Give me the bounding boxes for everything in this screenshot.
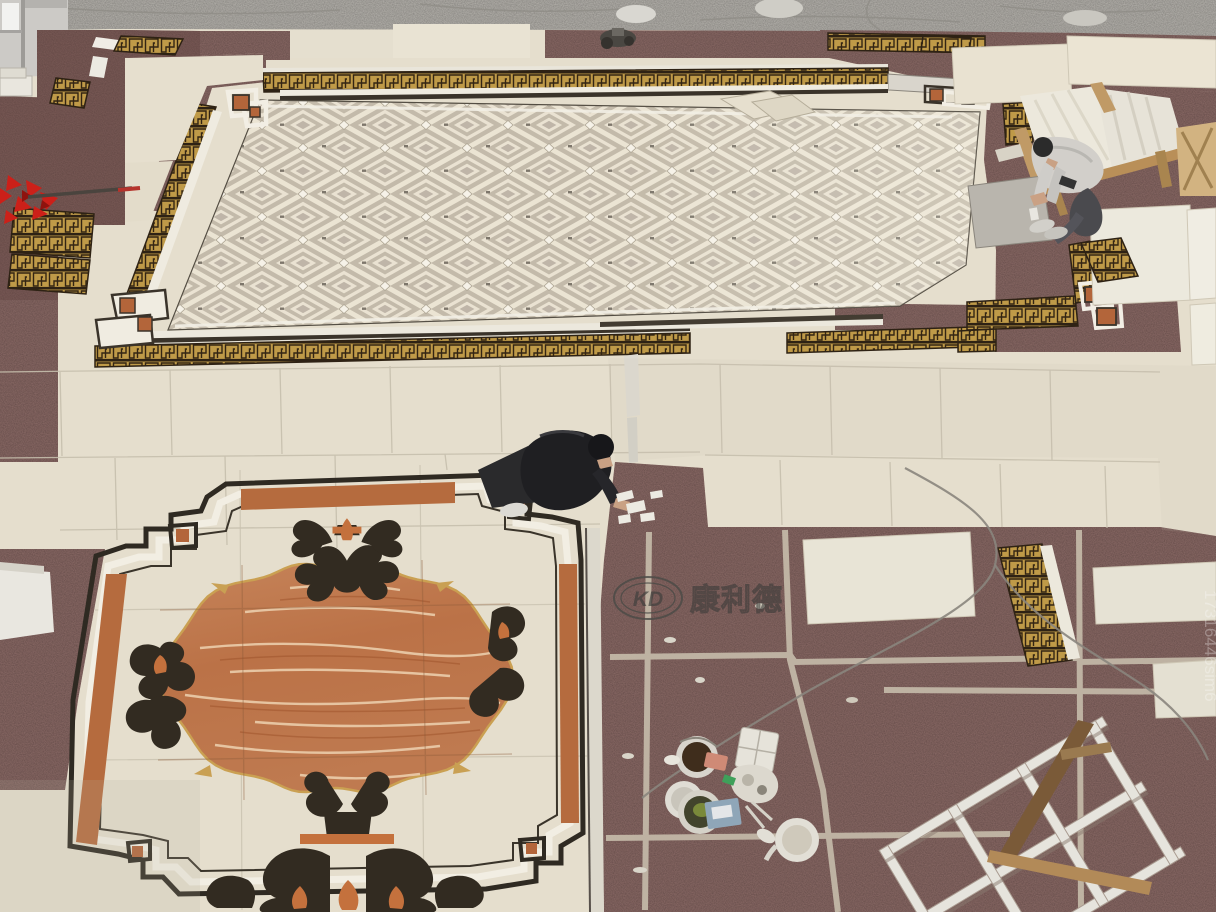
svg-text:17316446sim6: 17316446sim6 bbox=[1201, 590, 1216, 702]
svg-text:德: 德 bbox=[752, 584, 782, 617]
svg-text:利: 利 bbox=[721, 584, 751, 617]
svg-text:康: 康 bbox=[690, 583, 721, 617]
svg-text:KD: KD bbox=[633, 588, 663, 611]
